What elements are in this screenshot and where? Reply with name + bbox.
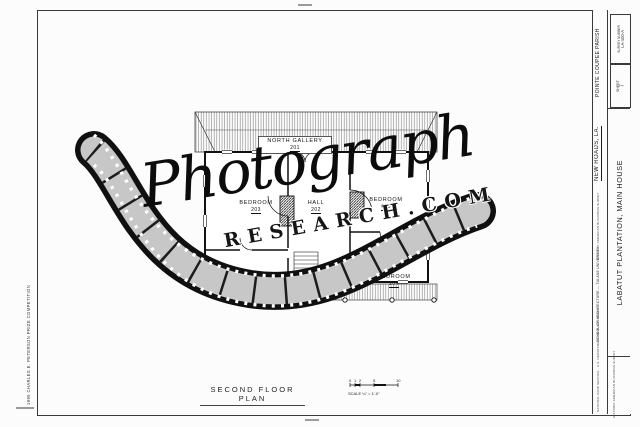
title-block: POINTE COUPEE PARISH NEW ROADS, LA. HIST… (592, 10, 631, 414)
structure-name: LABATUT PLANTATION, MAIN HOUSE (615, 160, 624, 305)
survey-number-value: LA-100-A (620, 30, 625, 48)
film-strip-graphic (0, 0, 640, 427)
parish-label: POINTE COUPEE PARISH (595, 14, 606, 112)
survey-number-box: SURVEY NUMBER LA-100-A (610, 14, 631, 64)
sheet-number-box: SHEET 7 (610, 64, 631, 108)
drawing-sheet: 1995 CHARLES E. PETERSON PRIZE COMPETITI… (0, 0, 640, 427)
structure-name-box: LABATUT PLANTATION, MAIN HOUSE (608, 108, 630, 357)
city-label: NEW ROADS, LA. (594, 114, 606, 194)
reference-note: NATIONAL PARK SERVICE · U.S. DEPARTMENT … (597, 346, 605, 412)
sheet-number-value: 7 (620, 85, 626, 88)
title-block-footnote: HISTORIC AMERICAN BUILDINGS SURVEY (613, 360, 623, 418)
